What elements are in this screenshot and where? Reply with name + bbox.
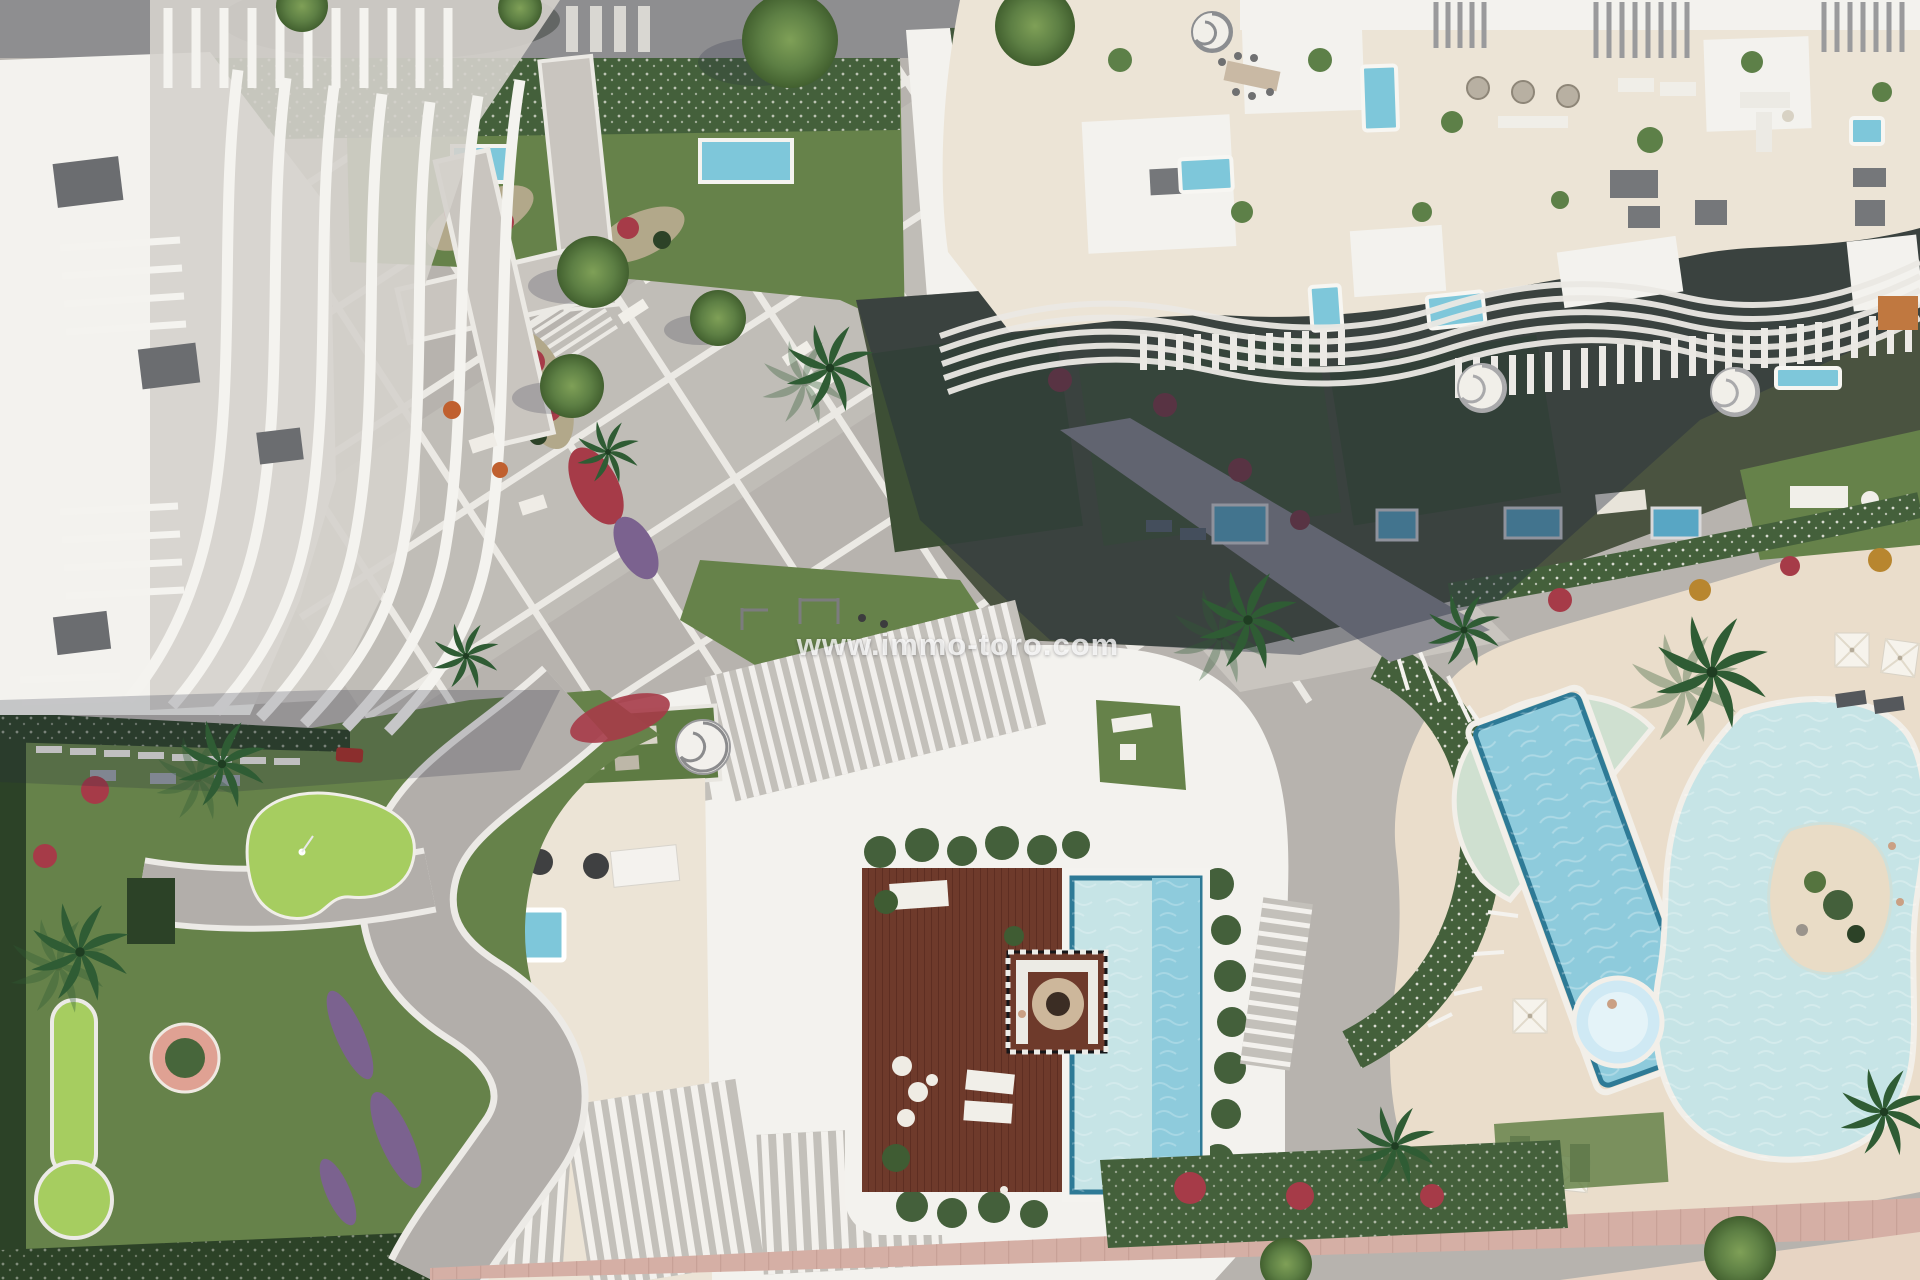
umbrella [1513, 999, 1547, 1033]
ground-pool [1652, 508, 1700, 538]
umbrella [1881, 639, 1919, 677]
pink-planter [151, 1024, 219, 1092]
orange-dining-set [1878, 296, 1918, 330]
person [1018, 1010, 1026, 1018]
swimmer [1896, 898, 1904, 906]
bather [1607, 999, 1617, 1009]
sunken-lounge [1008, 952, 1106, 1052]
east-lawn-strip [1096, 700, 1186, 790]
jacuzzi-pool [1574, 978, 1662, 1066]
orange-cushion [492, 462, 508, 478]
orange-cushion [443, 401, 461, 419]
aerial-render: www.immo-toro.com [0, 0, 1920, 1280]
freeform-pool [1655, 699, 1920, 1160]
umbrella [1835, 633, 1869, 667]
garden-pool-wide [700, 140, 792, 182]
roof-spiral-stair [676, 720, 730, 774]
watermark-text: www.immo-toro.com [797, 627, 1119, 663]
swimmer [1888, 842, 1896, 850]
hedge-block [127, 878, 175, 944]
